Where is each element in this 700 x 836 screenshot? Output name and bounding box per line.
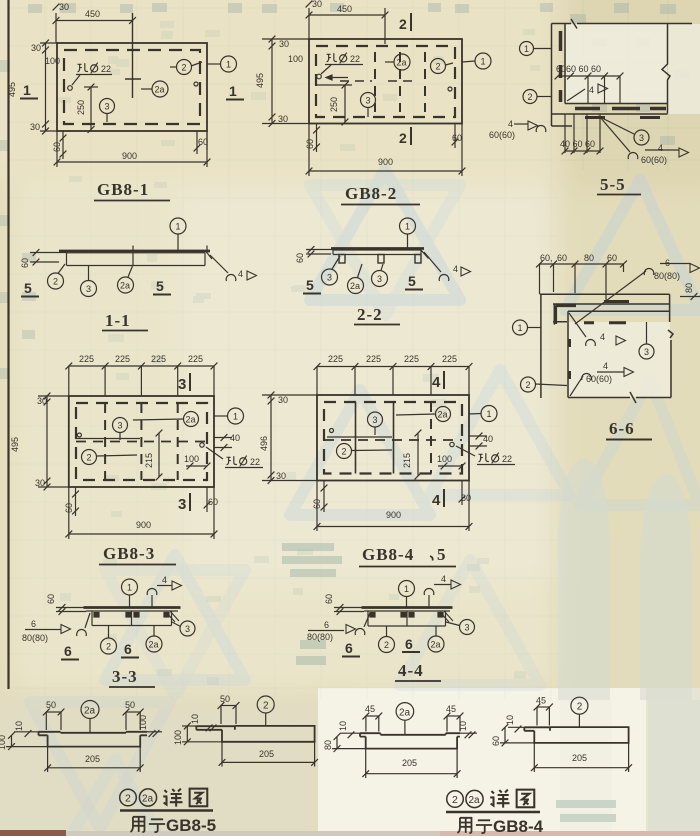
- svg-text:60(60): 60(60): [489, 130, 515, 140]
- svg-text:3-3: 3-3: [112, 667, 138, 686]
- svg-text:22: 22: [250, 457, 260, 467]
- svg-text:6-6: 6-6: [609, 419, 635, 438]
- svg-text:45: 45: [536, 696, 546, 706]
- svg-text:1: 1: [481, 57, 486, 67]
- svg-text:1: 1: [405, 222, 410, 232]
- svg-text:6: 6: [324, 620, 329, 630]
- svg-text:60: 60: [557, 253, 567, 263]
- svg-text:3: 3: [377, 274, 382, 284]
- svg-text:225: 225: [404, 354, 419, 364]
- svg-text:225: 225: [442, 354, 457, 364]
- svg-text:1: 1: [524, 44, 529, 54]
- svg-text:10: 10: [338, 721, 348, 731]
- svg-text:6: 6: [124, 641, 132, 657]
- svg-text:2a: 2a: [155, 85, 165, 95]
- svg-text:1: 1: [23, 82, 31, 98]
- svg-text:60: 60: [208, 497, 218, 507]
- svg-text:10: 10: [14, 721, 24, 731]
- svg-text:495: 495: [255, 73, 265, 88]
- svg-text:3: 3: [644, 347, 649, 357]
- svg-text:3: 3: [178, 376, 186, 393]
- svg-text:3: 3: [327, 273, 332, 283]
- svg-text:80: 80: [584, 253, 594, 263]
- svg-text:60: 60: [607, 253, 617, 263]
- svg-text:2a: 2a: [142, 794, 154, 805]
- svg-text:2a: 2a: [438, 410, 448, 420]
- svg-text:1: 1: [487, 409, 492, 419]
- svg-text:GB8-4: GB8-4: [493, 817, 544, 836]
- svg-text:4-4: 4-4: [398, 661, 424, 680]
- svg-text:2: 2: [436, 62, 441, 72]
- svg-text:60(60): 60(60): [586, 374, 612, 384]
- svg-text:205: 205: [402, 758, 417, 768]
- svg-text:2: 2: [399, 130, 407, 146]
- svg-text:3: 3: [185, 624, 190, 634]
- svg-text:10: 10: [190, 714, 200, 724]
- svg-text:4: 4: [658, 143, 663, 153]
- svg-text:3: 3: [86, 284, 91, 294]
- svg-text:40: 40: [230, 433, 240, 443]
- svg-text:1: 1: [233, 412, 238, 422]
- svg-text:60: 60: [46, 594, 56, 604]
- svg-text:30: 30: [31, 43, 41, 53]
- svg-text:1-1: 1-1: [105, 311, 131, 330]
- svg-text:2: 2: [452, 794, 458, 806]
- svg-text:5: 5: [156, 278, 164, 294]
- svg-text:30: 30: [35, 478, 45, 488]
- svg-text:60: 60: [324, 594, 334, 604]
- svg-text:1: 1: [176, 222, 181, 232]
- svg-text:3: 3: [118, 421, 123, 431]
- svg-text:3: 3: [105, 102, 110, 112]
- svg-text:225: 225: [115, 354, 130, 364]
- svg-text:22: 22: [502, 454, 512, 464]
- svg-text:4: 4: [162, 575, 167, 585]
- svg-text:4: 4: [589, 85, 594, 95]
- svg-text:60: 60: [295, 253, 305, 263]
- svg-text:1: 1: [404, 584, 409, 594]
- svg-text:2a: 2a: [186, 415, 196, 425]
- svg-text:80(80): 80(80): [22, 633, 48, 643]
- svg-text:1: 1: [226, 60, 231, 70]
- svg-text:225: 225: [79, 354, 94, 364]
- svg-text:GB8-1: GB8-1: [97, 180, 149, 199]
- svg-text:495: 495: [7, 82, 17, 97]
- svg-text:215: 215: [402, 453, 412, 468]
- svg-text:100: 100: [184, 454, 199, 464]
- svg-text:250: 250: [329, 97, 339, 112]
- svg-text:2: 2: [125, 793, 131, 805]
- svg-text:3: 3: [178, 496, 186, 513]
- svg-text:2a: 2a: [120, 281, 130, 291]
- svg-text:6060 60 60: 6060 60 60: [556, 64, 601, 74]
- svg-text:GB8-3: GB8-3: [103, 544, 155, 563]
- svg-text:2-2: 2-2: [357, 305, 383, 324]
- svg-text:3: 3: [373, 415, 378, 425]
- svg-text:2a: 2a: [84, 706, 96, 717]
- svg-text:100: 100: [173, 730, 183, 745]
- svg-text:60(60): 60(60): [641, 155, 667, 165]
- svg-text:6: 6: [31, 619, 36, 629]
- svg-text:100: 100: [45, 56, 60, 66]
- svg-text:10: 10: [505, 715, 515, 725]
- svg-text:450: 450: [85, 9, 100, 19]
- svg-text:205: 205: [572, 753, 587, 763]
- svg-text:100: 100: [0, 735, 7, 750]
- svg-text:2: 2: [182, 63, 187, 73]
- svg-text:4: 4: [600, 332, 605, 342]
- svg-text:80: 80: [323, 740, 333, 750]
- svg-text:225: 225: [151, 354, 166, 364]
- svg-text:4: 4: [453, 264, 458, 274]
- svg-text:4: 4: [441, 574, 446, 584]
- svg-text:2a: 2a: [397, 58, 407, 68]
- svg-text:4: 4: [432, 374, 441, 391]
- svg-text:5-5: 5-5: [600, 175, 626, 194]
- svg-text:2: 2: [342, 447, 347, 457]
- svg-text:225: 225: [366, 354, 381, 364]
- svg-text:80: 80: [684, 283, 694, 293]
- svg-text:900: 900: [136, 520, 151, 530]
- svg-text:30: 30: [279, 39, 289, 49]
- svg-text:2: 2: [53, 277, 58, 287]
- svg-text:40: 40: [483, 434, 493, 444]
- svg-text:225: 225: [188, 354, 203, 364]
- svg-text:6: 6: [345, 640, 353, 656]
- svg-text:2: 2: [263, 701, 269, 712]
- svg-text:30: 30: [276, 471, 286, 481]
- svg-text:225: 225: [328, 354, 343, 364]
- svg-text:2a: 2a: [469, 795, 481, 806]
- svg-text:30: 30: [278, 114, 288, 124]
- svg-text:30: 30: [37, 396, 47, 406]
- svg-text:900: 900: [386, 510, 401, 520]
- svg-text:100: 100: [437, 454, 452, 464]
- svg-text:60: 60: [452, 133, 462, 143]
- svg-text:2: 2: [87, 453, 92, 463]
- svg-text:495: 495: [10, 437, 20, 452]
- svg-text:2a: 2a: [350, 281, 360, 291]
- svg-text:80(80): 80(80): [307, 632, 333, 642]
- svg-text:30: 30: [30, 122, 40, 132]
- svg-text:900: 900: [378, 157, 393, 167]
- svg-text:250: 250: [76, 100, 86, 115]
- svg-text:6: 6: [64, 643, 72, 659]
- svg-text:5: 5: [437, 545, 447, 564]
- svg-text:2a: 2a: [149, 640, 159, 650]
- svg-text:60,: 60,: [540, 253, 553, 263]
- svg-text:3: 3: [465, 623, 470, 633]
- svg-text:45: 45: [446, 704, 456, 714]
- svg-text:GB8-2: GB8-2: [345, 184, 397, 203]
- svg-text:5: 5: [24, 280, 32, 296]
- svg-text:30: 30: [312, 0, 322, 9]
- svg-text:3: 3: [639, 133, 644, 143]
- svg-text:4: 4: [238, 269, 243, 279]
- svg-text:900: 900: [122, 151, 137, 161]
- svg-text:3: 3: [366, 96, 371, 106]
- svg-text:60: 60: [20, 258, 30, 268]
- svg-text:50: 50: [46, 700, 56, 710]
- svg-text:496: 496: [259, 436, 269, 451]
- svg-text:80(80): 80(80): [654, 271, 680, 281]
- svg-text:4: 4: [603, 361, 608, 371]
- svg-text:5: 5: [306, 277, 314, 293]
- svg-text:450: 450: [337, 4, 352, 14]
- svg-text:GB8-5: GB8-5: [166, 816, 216, 835]
- svg-text:30: 30: [59, 2, 69, 12]
- svg-text:1: 1: [518, 323, 523, 333]
- svg-text:100: 100: [288, 54, 303, 64]
- svg-text:60: 60: [305, 139, 315, 149]
- svg-text:60: 60: [491, 736, 501, 746]
- svg-text:22: 22: [101, 64, 111, 74]
- svg-text:2: 2: [526, 380, 531, 390]
- svg-text:2a: 2a: [399, 707, 411, 718]
- svg-text:10: 10: [458, 721, 468, 731]
- svg-text:22: 22: [350, 54, 360, 64]
- svg-text:205: 205: [259, 749, 274, 759]
- svg-text:215: 215: [144, 453, 154, 468]
- svg-text:1: 1: [127, 583, 132, 593]
- svg-text:2a: 2a: [431, 640, 441, 650]
- svg-text:4: 4: [432, 492, 441, 509]
- svg-text:2: 2: [106, 642, 111, 652]
- svg-text:100: 100: [138, 715, 148, 730]
- svg-text:5: 5: [408, 273, 416, 289]
- svg-text:40 60 60: 40 60 60: [560, 139, 595, 149]
- svg-text:205: 205: [85, 754, 100, 764]
- svg-text:6: 6: [405, 636, 413, 652]
- svg-text:2: 2: [399, 16, 407, 32]
- svg-text:50: 50: [220, 694, 230, 704]
- svg-text:45: 45: [365, 704, 375, 714]
- svg-text:30: 30: [278, 395, 288, 405]
- svg-text:2: 2: [577, 702, 583, 713]
- svg-text:50: 50: [125, 700, 135, 710]
- svg-text:2: 2: [384, 640, 389, 650]
- svg-text:1: 1: [229, 83, 237, 99]
- svg-text:GB8-4: GB8-4: [362, 545, 414, 564]
- svg-text:4: 4: [508, 119, 513, 129]
- svg-text:2: 2: [528, 92, 533, 102]
